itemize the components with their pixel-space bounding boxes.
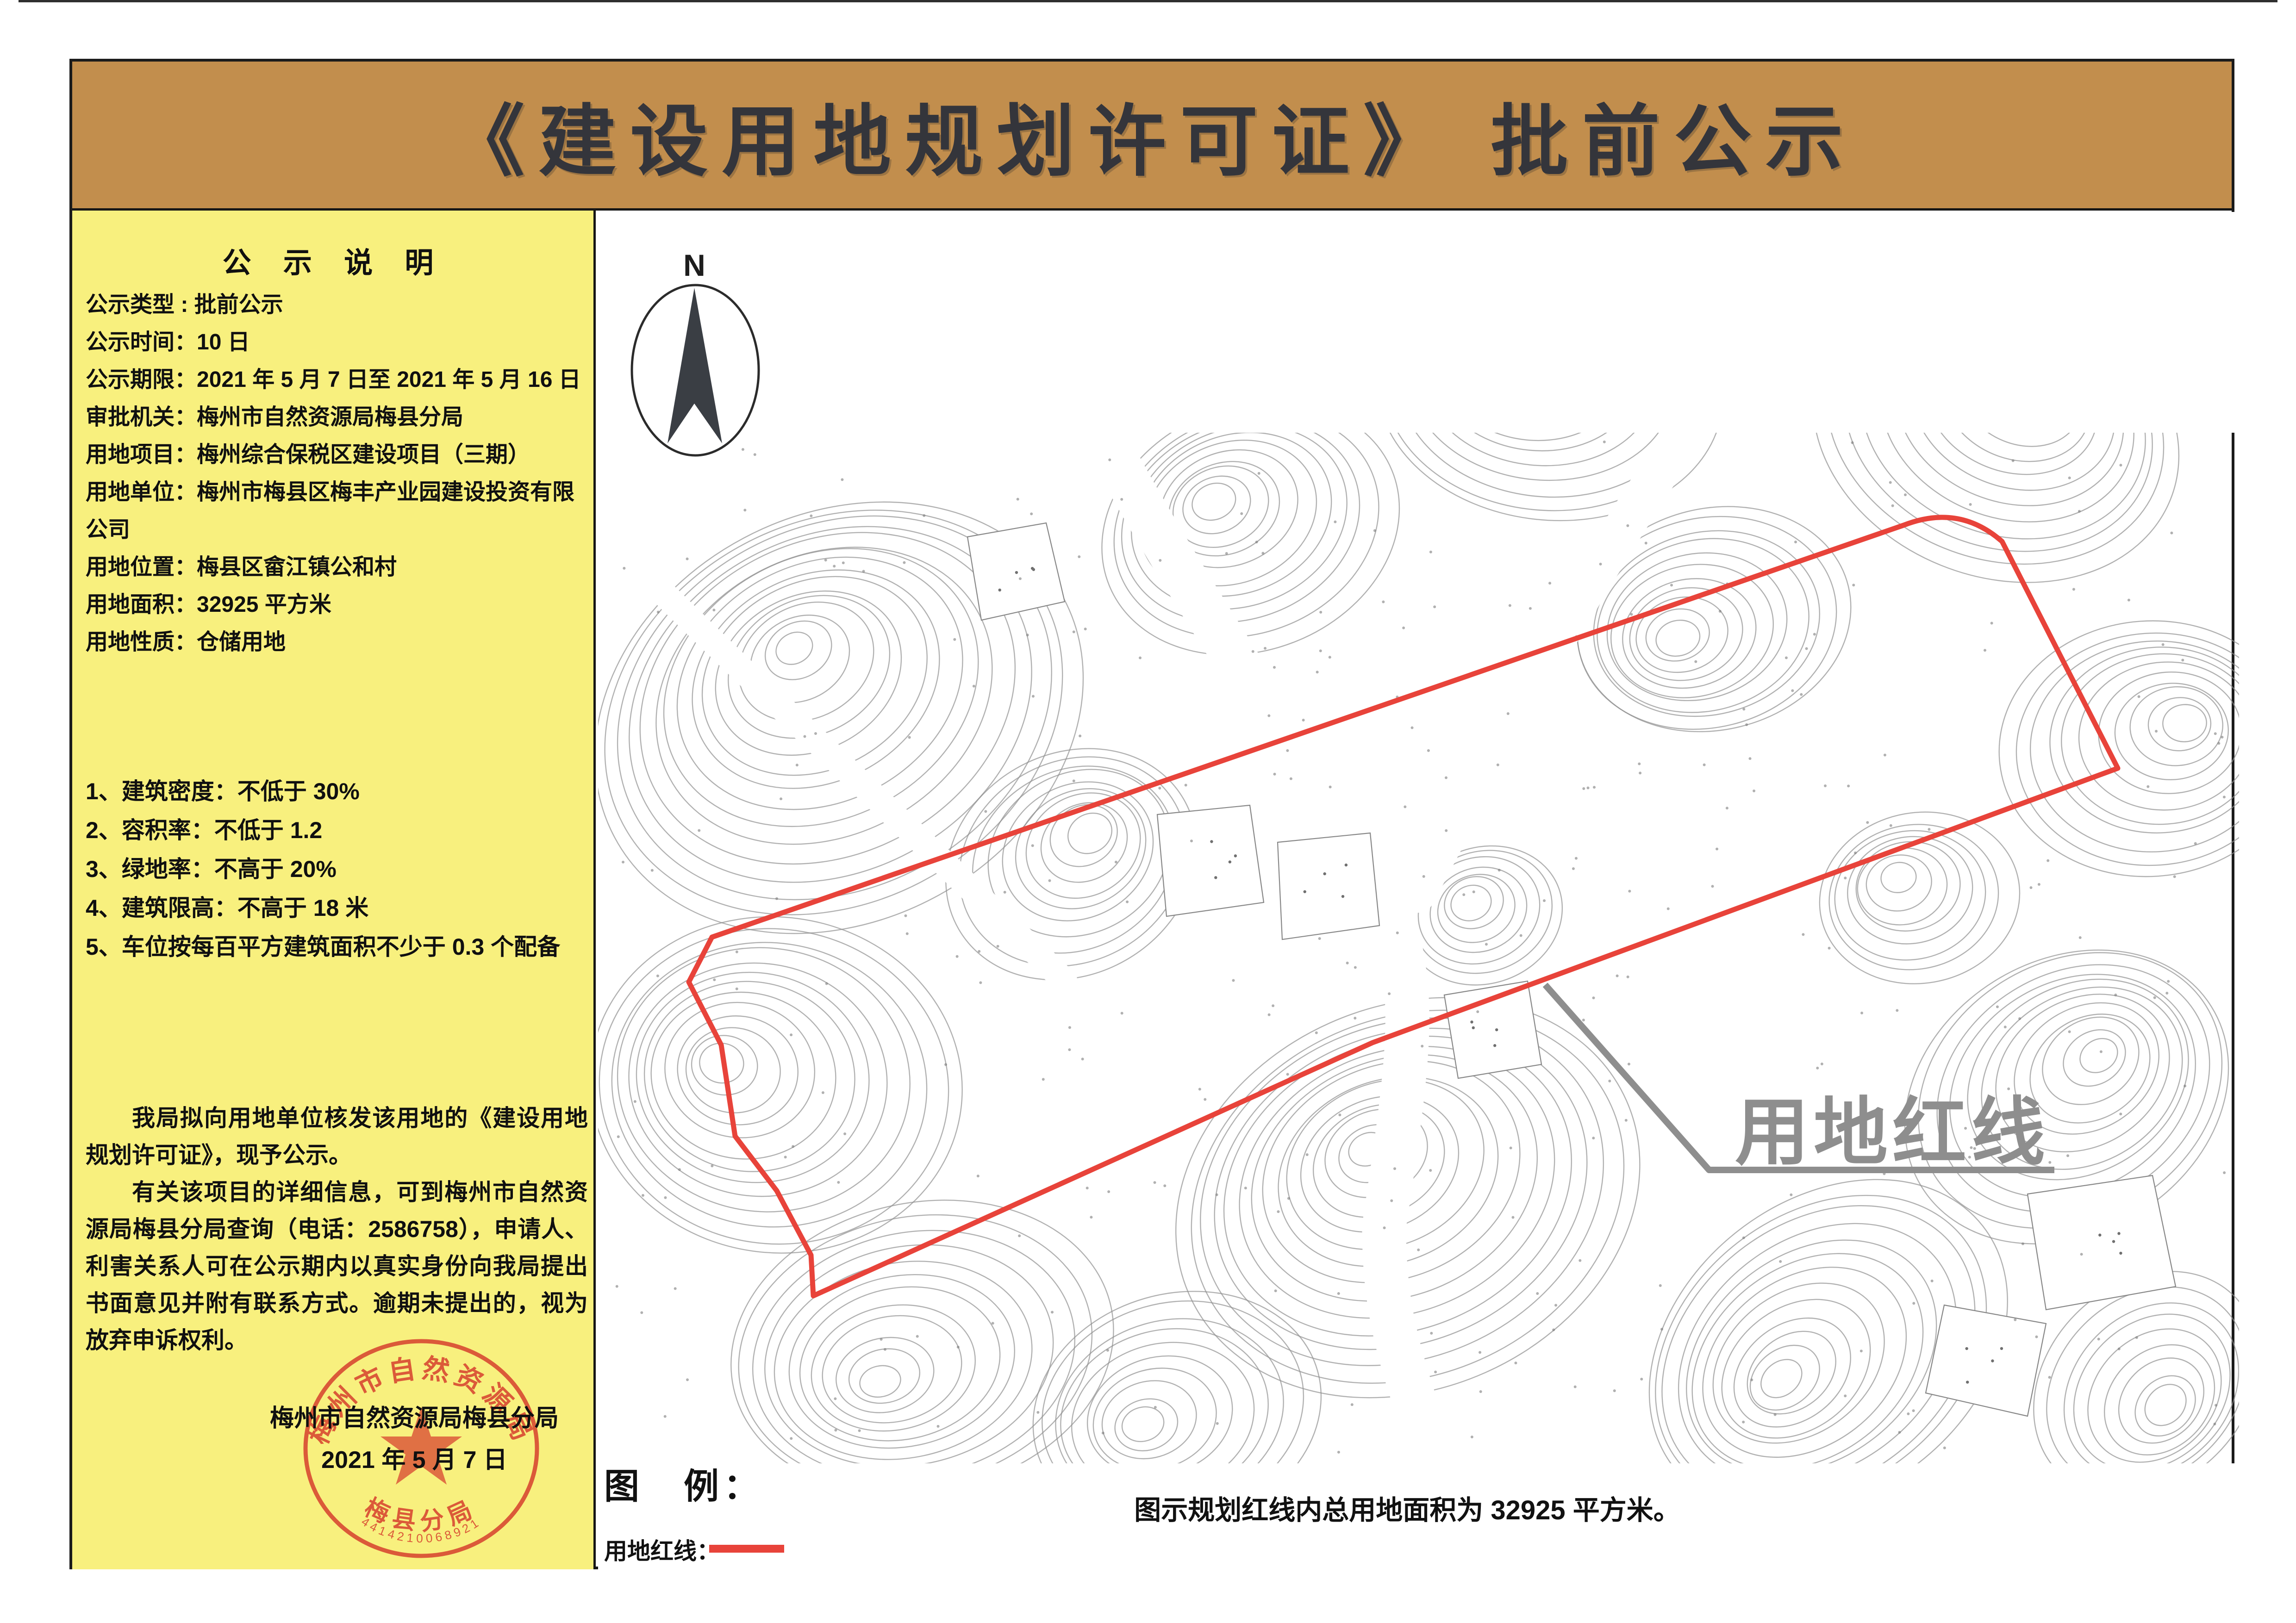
info-row-authority: 审批机关：梅州市自然资源局梅县分局 [86, 398, 593, 436]
notice-info-list: 公示类型 : 批前公示 公示时间：10 日 公示期限：2021 年 5 月 7 … [86, 286, 593, 661]
info-row-type: 公示类型 : 批前公示 [86, 286, 593, 323]
red-line-map-label: 用地红线 [1735, 1091, 2050, 1174]
legend-red-line-label: 用地红线： [604, 1533, 720, 1566]
condition-far: 2、容积率：不低于 1.2 [86, 811, 593, 850]
page-title: 《建设用地规划许可证》 批前公示 [447, 79, 1857, 191]
condition-parking: 5、车位按每百平方建筑面积不少于 0.3 个配备 [86, 927, 593, 966]
notice-paragraphs: 我局拟向用地单位核发该用地的《建设用地规划许可证》，现予公示。 有关该项目的详细… [86, 1100, 588, 1359]
planning-conditions-list: 1、建筑密度：不低于 30% 2、容积率：不低于 1.2 3、绿地率：不高于 2… [86, 772, 593, 966]
legend-title: 图 例： [604, 1458, 763, 1509]
site-plan-map: 用地红线 N [598, 212, 2239, 1573]
header-band: 《建设用地规划许可证》 批前公示 [72, 62, 2232, 211]
map-area-caption: 图示规划红线内总用地面积为 32925 平方米。 [1083, 1488, 1731, 1527]
signature-date: 2021 年 5 月 7 日 [194, 1440, 634, 1475]
info-row-area: 用地面积：32925 平方米 [86, 586, 593, 623]
info-row-period: 公示期限：2021 年 5 月 7 日至 2021 年 5 月 16 日 [86, 361, 593, 398]
info-row-unit: 用地单位：梅州市梅县区梅丰产业园建设投资有限公司 [86, 473, 593, 548]
legend-red-line-swatch [709, 1545, 784, 1553]
info-row-duration: 公示时间：10 日 [86, 323, 593, 361]
condition-green: 3、绿地率：不高于 20% [86, 850, 593, 889]
condition-density: 1、建筑密度：不低于 30% [86, 772, 593, 811]
panel-title: 公 示 说 明 [72, 239, 596, 281]
signature-agency: 梅州市自然资源局梅县分局 [194, 1399, 634, 1433]
info-row-nature: 用地性质：仓储用地 [86, 623, 593, 661]
north-label: N [683, 248, 705, 282]
notice-page: 《建设用地规划许可证》 批前公示 公 示 说 明 公示类型 : 批前公示 公示时… [0, 0, 2296, 1623]
info-row-location: 用地位置：梅县区畲江镇公和村 [86, 548, 593, 586]
info-row-project: 用地项目：梅州综合保税区建设项目（三期） [86, 436, 593, 473]
paragraph-contact: 有关该项目的详细信息，可到梅州市自然资源局梅县分局查询（电话：2586758），… [86, 1174, 588, 1359]
scan-edge-artifact [19, 0, 2277, 2]
paragraph-issue: 我局拟向用地单位核发该用地的《建设用地规划许可证》，现予公示。 [86, 1100, 588, 1174]
condition-height: 4、建筑限高：不高于 18 米 [86, 889, 593, 927]
